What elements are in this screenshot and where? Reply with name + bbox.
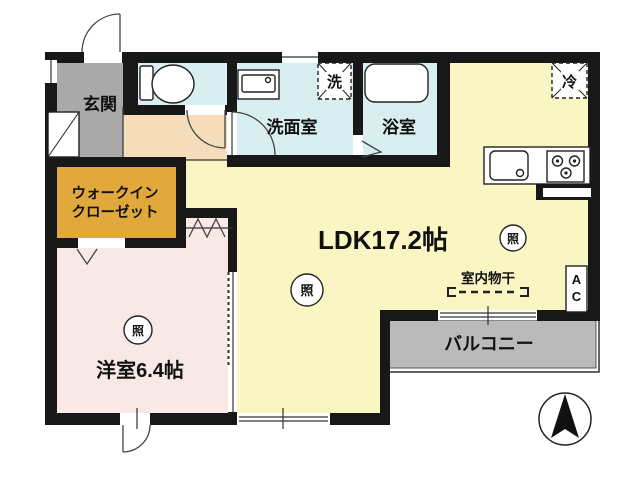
svg-text:照: 照 — [132, 323, 144, 338]
washer-label: 洗 — [327, 73, 342, 91]
room-yokushitsu-label: 浴室 — [382, 117, 416, 137]
room-senmenshitsu-label: 洗面室 — [267, 117, 318, 137]
fridge-label: 冷 — [562, 73, 577, 91]
wall — [45, 157, 186, 167]
room-yoshitsu-label: 洋室6.4帖 — [96, 358, 184, 382]
wall — [45, 238, 78, 248]
svg-text:C: C — [572, 289, 582, 304]
yoshitsu-door-opening — [120, 413, 150, 425]
entrance-door-arc — [82, 14, 120, 52]
wall — [123, 52, 138, 107]
entrance-door-opening — [84, 52, 122, 63]
wall — [123, 105, 185, 115]
toilet-icon — [152, 65, 194, 103]
svg-text:照: 照 — [300, 283, 313, 298]
toilet-icon — [140, 66, 153, 100]
wall — [125, 238, 186, 248]
fridge-space-symbol: 冷 — [552, 63, 587, 98]
indoor-drying-label: 室内物干 — [461, 270, 515, 286]
kitchen-return-wall-niche — [543, 188, 591, 197]
bathtub-icon — [365, 64, 428, 102]
wall — [183, 208, 237, 218]
wall — [227, 155, 450, 167]
compass-north-icon — [539, 393, 591, 445]
closet-door-opening — [78, 238, 125, 248]
wall — [45, 413, 390, 425]
svg-text:照: 照 — [507, 231, 519, 246]
floor-plan: 洗 冷 照 照 照 A C 室内物干 玄関 ウォークイン クローゼット 洗面室 … — [0, 0, 640, 480]
light-symbol: 照 — [291, 274, 323, 306]
wall — [176, 157, 186, 248]
wall — [380, 310, 390, 422]
room-ldk-label: LDK17.2帖 — [318, 225, 448, 255]
room-wic-label: ウォークイン — [72, 185, 159, 202]
wall — [353, 52, 363, 135]
balcony-label: バルコニー — [444, 334, 534, 354]
svg-text:A: A — [572, 272, 582, 287]
light-symbol: 照 — [500, 225, 526, 251]
vanity-faucet-icon — [266, 78, 271, 83]
washer-space-symbol: 洗 — [318, 63, 351, 99]
room-wic-floor — [57, 165, 176, 240]
wall — [228, 412, 237, 425]
wall — [437, 52, 450, 167]
room-genkan-label: 玄関 — [83, 94, 117, 114]
wall — [227, 52, 237, 112]
floor-plan-drawing: 洗 冷 照 照 照 A C 室内物干 玄関 ウォークイン クローゼット 洗面室 … — [0, 0, 640, 480]
ac-unit: A C — [566, 266, 587, 312]
yoshitsu-door-arc — [123, 425, 150, 452]
room-ldk-floor — [183, 160, 237, 210]
kitchen-faucet-icon — [517, 170, 524, 177]
wall — [228, 218, 237, 272]
room-wic-label: クローゼット — [72, 203, 159, 221]
light-symbol: 照 — [124, 316, 152, 344]
toilet-door-opening — [185, 105, 225, 115]
room-ldk-floor — [237, 310, 388, 413]
